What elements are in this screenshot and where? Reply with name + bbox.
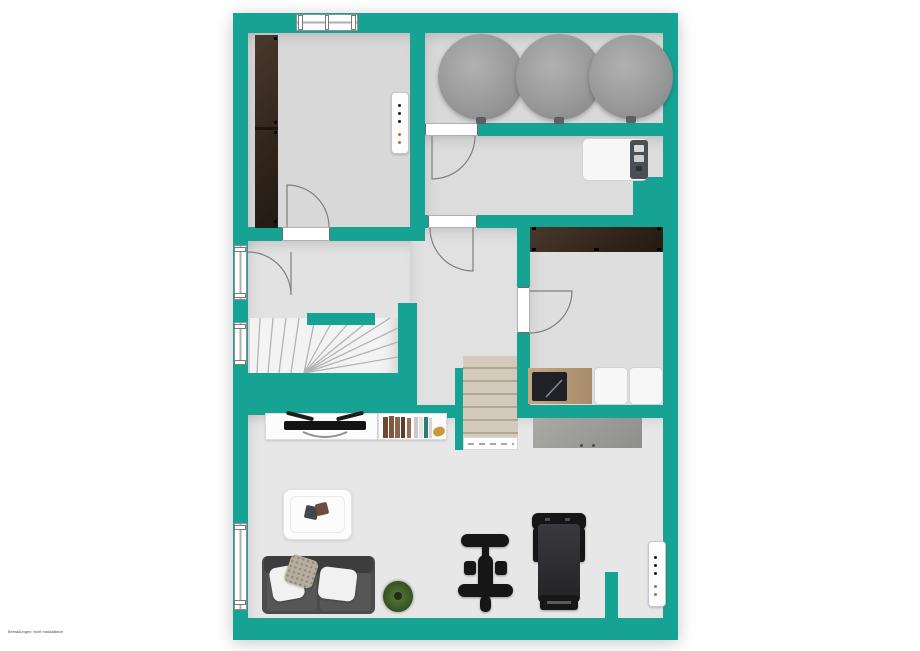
- round-tank-1-tab: [476, 117, 486, 124]
- exercise-bike-tail: [480, 596, 491, 612]
- book-6: [414, 417, 418, 438]
- heater-dot-1: [398, 104, 401, 107]
- wardrobe-r-handle-5: [657, 227, 661, 230]
- door-gap-wardrobe-room: [517, 287, 530, 333]
- counter-knob-1: [580, 444, 583, 447]
- treadmill-console-dot-1: [545, 518, 550, 521]
- book-3: [395, 417, 400, 438]
- wall-divider-vertical-top: [410, 33, 425, 241]
- straight-staircase: [463, 356, 518, 437]
- door-gap-topleft-room: [282, 227, 330, 241]
- exercise-bike-pedal-left: [464, 561, 476, 575]
- window-left-1: [234, 245, 247, 300]
- window-left-3-jamb-a: [234, 525, 246, 530]
- floor-plan-canvas: Bemaßungen: nicht maßstäblich: [0, 0, 920, 651]
- heater-br-dot-4: [654, 585, 657, 588]
- desk-screen: [532, 372, 567, 401]
- plant-core: [394, 592, 402, 600]
- heater-br-dot-1: [654, 556, 657, 559]
- wall-kitchen-divider: [517, 405, 663, 418]
- book-2: [389, 416, 394, 438]
- book-4: [401, 417, 405, 438]
- wardrobe-handle-4: [274, 220, 277, 223]
- wall-stair-halfwall: [307, 313, 375, 325]
- heater-dot-2: [398, 112, 401, 115]
- heater-br-dot-2: [654, 564, 657, 567]
- treadmill-belt: [538, 524, 580, 602]
- window-left-3-jamb-b: [234, 600, 246, 605]
- wall-wardroberoom-left-a: [517, 228, 530, 287]
- wardrobe-top-left-divider: [255, 127, 278, 130]
- round-tank-1: [438, 34, 524, 120]
- wall-below-stairs: [233, 373, 417, 415]
- kitchen-counter: [533, 418, 642, 448]
- wardrobe-handle-3: [274, 131, 277, 134]
- round-tank-3-tab: [626, 116, 636, 123]
- heater-dot-5: [398, 141, 401, 144]
- bed-mark-dark: [636, 166, 642, 171]
- window-left-2-jamb-b: [234, 360, 246, 365]
- wall-bedroom-bottom-left: [410, 215, 428, 228]
- watermark-text: Bemaßungen: nicht maßstäblich: [8, 630, 63, 634]
- treadmill-console-dot-2: [565, 518, 570, 521]
- book-1: [383, 417, 388, 438]
- wall-heater-top: [391, 92, 409, 154]
- window-top-jamb-left: [298, 15, 303, 30]
- heater-dot-3: [398, 120, 401, 123]
- exercise-bike-pedal-right: [495, 561, 507, 575]
- window-left-1-jamb-b: [234, 293, 246, 298]
- book-7: [419, 417, 423, 438]
- counter-knob-2: [592, 444, 595, 447]
- mattress-2: [629, 367, 663, 405]
- door-gap-bed-room: [428, 215, 477, 228]
- wardrobe-handle-2: [274, 121, 277, 124]
- wardrobe-r-handle-3: [657, 248, 661, 251]
- round-tank-2-tab: [554, 117, 564, 124]
- wardrobe-r-handle-2: [594, 248, 599, 251]
- window-left-3: [234, 523, 247, 610]
- wall-hall-vertical: [398, 303, 417, 373]
- mattress-1: [594, 367, 628, 405]
- staircase-landing: [463, 437, 518, 450]
- window-top-jamb-right: [351, 15, 356, 30]
- heater-br-dot-5: [654, 593, 657, 596]
- bed-pillow-mark-1: [634, 145, 644, 152]
- door-gap-circle-room: [425, 123, 478, 136]
- book-9: [429, 418, 432, 438]
- bed-pillow-mark-2: [634, 155, 644, 162]
- book-8: [424, 417, 428, 438]
- winder-staircase: [250, 318, 398, 373]
- book-5: [407, 418, 411, 438]
- wall-bottom-stub: [605, 572, 618, 618]
- tv-screen-bar: [284, 421, 366, 430]
- window-left-1-jamb-a: [234, 247, 246, 252]
- wall-topleftroom-bottom-b: [330, 227, 410, 241]
- wall-topleftroom-bottom-a: [233, 227, 282, 241]
- heater-br-dot-3: [654, 572, 657, 575]
- wall-heater-bottom-right: [648, 541, 666, 607]
- wall-bottom: [233, 618, 678, 640]
- wall-circleroom-bottom: [478, 123, 663, 136]
- wardrobe-handle-1: [274, 37, 277, 40]
- wall-bedroom-corner-block: [633, 177, 663, 215]
- heater-dot-4: [398, 133, 401, 136]
- wardrobe-r-handle-4: [532, 227, 536, 230]
- wardrobe-r-handle-1: [532, 248, 536, 251]
- wall-stairwell-left: [455, 368, 463, 450]
- sofa-pillow-white-2: [317, 566, 358, 602]
- window-left-2-jamb-a: [234, 324, 246, 329]
- window-top-jamb-mid: [325, 15, 329, 30]
- treadmill-foot-label: [547, 601, 571, 604]
- round-tank-3: [589, 35, 673, 119]
